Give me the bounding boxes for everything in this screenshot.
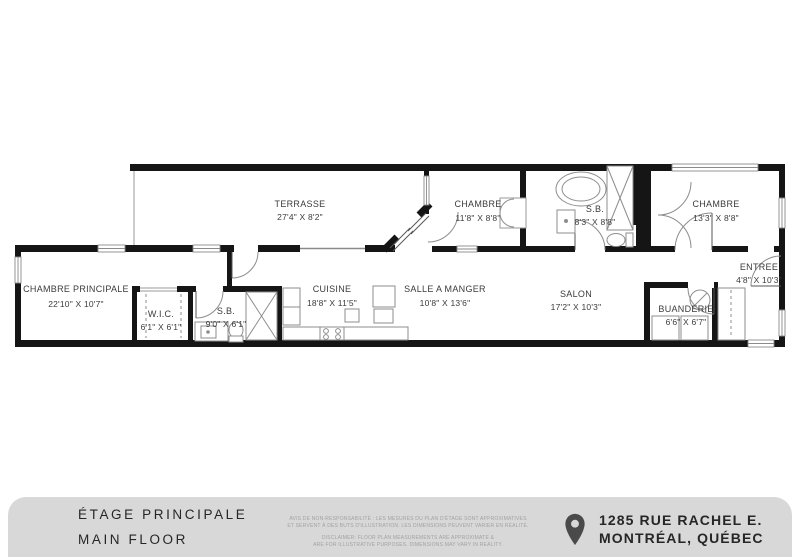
- disclaimer: AVIS DE NON-RESPONSABILITÉ : LES MESURES…: [248, 516, 568, 554]
- svg-text:4'8" X 10'3": 4'8" X 10'3": [736, 275, 782, 285]
- room-label-entree: ENTREE 4'8" X 10'3": [736, 262, 782, 285]
- footer-bar: ÉTAGE PRINCIPALE MAIN FLOOR AVIS DE NON-…: [8, 497, 792, 557]
- svg-text:11'8" X 8'8": 11'8" X 8'8": [455, 213, 500, 223]
- svg-text:17'2" X 10'3": 17'2" X 10'3": [551, 302, 602, 312]
- fridge-icon: [373, 286, 395, 307]
- address-block: 1285 RUE RACHEL E. MONTRÉAL, QUÉBEC: [564, 511, 764, 547]
- svg-text:CHAMBRE PRINCIPALE: CHAMBRE PRINCIPALE: [23, 284, 129, 294]
- dishwasher-icon: [374, 309, 393, 323]
- svg-text:22'10" X 10'7": 22'10" X 10'7": [48, 299, 104, 309]
- floor-plan: TERRASSE 27'4" X 8'2" CHAMBRE 11'8" X 8'…: [0, 0, 800, 497]
- svg-text:W.I.C.: W.I.C.: [148, 309, 174, 319]
- svg-text:18'8" X 11'5": 18'8" X 11'5": [307, 298, 357, 308]
- svg-text:27'4" X 8'2": 27'4" X 8'2": [277, 212, 323, 222]
- address-line-2: MONTRÉAL, QUÉBEC: [599, 529, 764, 547]
- svg-text:ENTREE: ENTREE: [740, 262, 778, 272]
- room-label-salon: SALON 17'2" X 10'3": [551, 289, 602, 312]
- svg-text:BUANDERIE: BUANDERIE: [658, 304, 713, 314]
- svg-text:10'8" X 13'6": 10'8" X 13'6": [420, 298, 471, 308]
- svg-text:S.B.: S.B.: [217, 306, 235, 316]
- svg-text:S.B.: S.B.: [586, 204, 604, 214]
- svg-text:8'3" X 8'8": 8'3" X 8'8": [575, 217, 616, 227]
- toilet-icon: [607, 234, 625, 247]
- room-label-wic: W.I.C. 6'1" X 6'1": [141, 309, 182, 332]
- kitchen-counter: [283, 327, 408, 340]
- room-label-terrasse: TERRASSE 27'4" X 8'2": [275, 199, 326, 222]
- floor-label-fr: ÉTAGE PRINCIPALE: [78, 508, 247, 522]
- address-line-1: 1285 RUE RACHEL E.: [599, 511, 764, 529]
- svg-text:SALLE A MANGER: SALLE A MANGER: [404, 284, 486, 294]
- disclaimer-fr: AVIS DE NON-RESPONSABILITÉ : LES MESURES…: [248, 516, 568, 529]
- floor-labels: ÉTAGE PRINCIPALE MAIN FLOOR: [78, 508, 247, 547]
- pantry-cabinet: [283, 288, 300, 307]
- room-label-chambre-1: CHAMBRE 11'8" X 8'8": [454, 199, 501, 223]
- svg-text:13'3" X 8'8": 13'3" X 8'8": [693, 213, 739, 223]
- svg-text:6'6" X 6'7": 6'6" X 6'7": [666, 317, 707, 327]
- location-pin-icon: [564, 513, 586, 546]
- room-label-cuisine: CUISINE 18'8" X 11'5": [307, 284, 357, 308]
- svg-text:SALON: SALON: [560, 289, 592, 299]
- address-lines: 1285 RUE RACHEL E. MONTRÉAL, QUÉBEC: [599, 511, 764, 547]
- svg-text:9'0" X 6'1": 9'0" X 6'1": [206, 319, 247, 329]
- svg-text:CHAMBRE: CHAMBRE: [454, 199, 501, 209]
- fixtures: [146, 166, 745, 342]
- room-label-chambre-principale: CHAMBRE PRINCIPALE 22'10" X 10'7": [23, 284, 129, 309]
- disclaimer-en: DISCLAIMER: FLOOR PLAN MEASUREMENTS ARE …: [248, 535, 568, 548]
- room-label-chambre-2: CHAMBRE 13'3" X 8'8": [692, 199, 739, 223]
- room-label-salle-a-manger: SALLE A MANGER 10'8" X 13'6": [404, 284, 486, 308]
- svg-text:CHAMBRE: CHAMBRE: [692, 199, 739, 209]
- svg-text:CUISINE: CUISINE: [313, 284, 352, 294]
- pantry-cabinet: [283, 307, 300, 325]
- svg-text:TERRASSE: TERRASSE: [275, 199, 326, 209]
- svg-text:6'1" X 6'1": 6'1" X 6'1": [141, 322, 182, 332]
- room-label-sb-2: S.B. 9'0" X 6'1": [206, 306, 247, 329]
- floor-label-en: MAIN FLOOR: [78, 533, 247, 547]
- appliance: [345, 309, 359, 322]
